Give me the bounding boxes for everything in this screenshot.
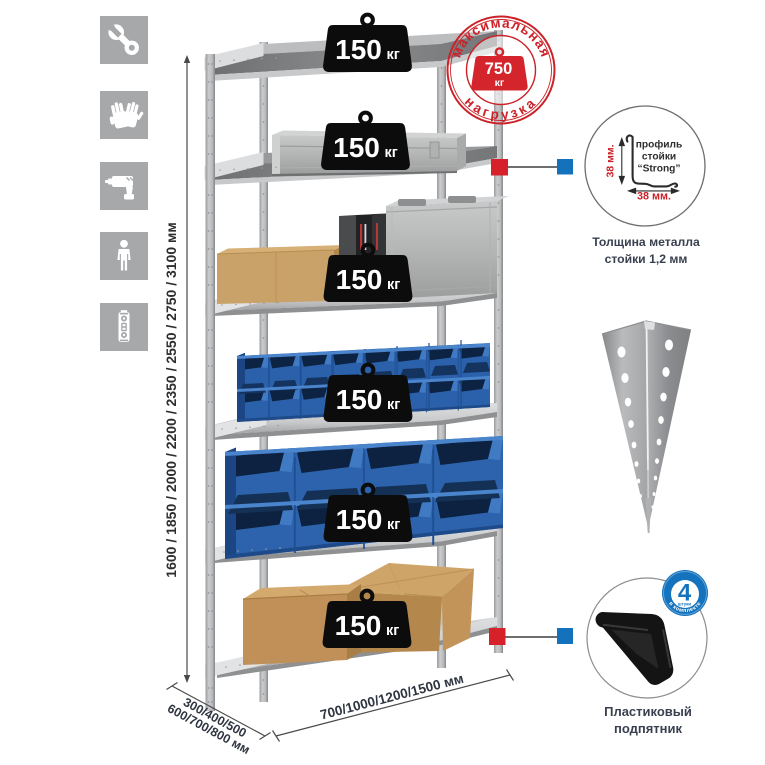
svg-text:стойки 1,2 мм: стойки 1,2 мм <box>605 252 688 266</box>
svg-text:кг: кг <box>495 77 505 89</box>
svg-text:“Strong”: “Strong” <box>637 164 680 175</box>
svg-text:профиль: профиль <box>636 139 683 151</box>
svg-text:Толщина металла: Толщина металла <box>592 235 700 249</box>
svg-text:38 мм.: 38 мм. <box>637 191 671 203</box>
svg-text:750: 750 <box>485 60 513 78</box>
svg-text:700/1000/1200/1500 мм: 700/1000/1200/1500 мм <box>319 671 466 723</box>
svg-text:38 мм.: 38 мм. <box>605 144 617 177</box>
svg-text:стойки: стойки <box>642 152 676 163</box>
svg-text:подпятник: подпятник <box>614 721 683 736</box>
svg-text:Пластиковый: Пластиковый <box>604 704 692 719</box>
svg-text:штуки: штуки <box>678 602 692 607</box>
svg-text:1600 / 1850 / 2000 / 2200 / 23: 1600 / 1850 / 2000 / 2200 / 2350 / 2550 … <box>163 222 179 577</box>
